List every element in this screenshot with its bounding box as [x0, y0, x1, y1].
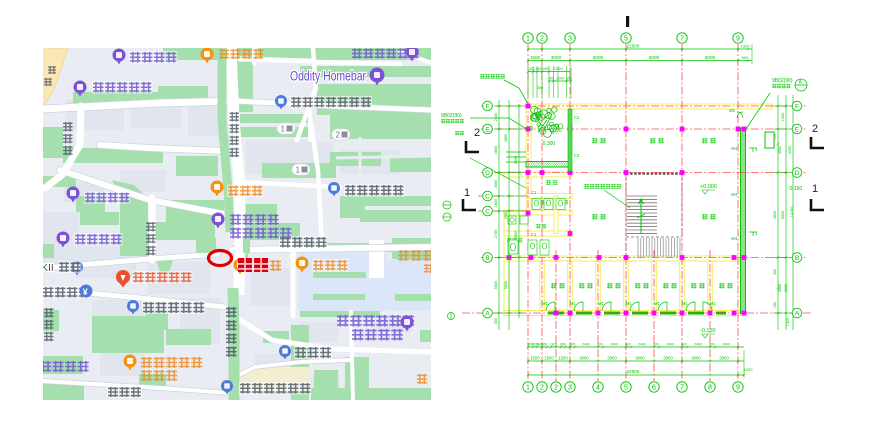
svg-text:14700: 14700 — [790, 207, 794, 218]
svg-text:5: 5 — [624, 36, 628, 43]
svg-text:M1: M1 — [542, 301, 548, 306]
svg-text:2400: 2400 — [694, 343, 702, 347]
svg-text:900: 900 — [543, 67, 549, 71]
svg-text:C: C — [485, 193, 490, 200]
svg-text:Oddity Homebar: Oddity Homebar — [290, 69, 366, 84]
svg-text:300: 300 — [529, 67, 535, 71]
svg-text:-0.150: -0.150 — [788, 186, 802, 192]
svg-text:F: F — [486, 103, 490, 110]
svg-text:C1: C1 — [531, 232, 537, 237]
svg-text:1200: 1200 — [556, 77, 564, 81]
svg-text:3000: 3000 — [551, 55, 562, 60]
svg-text:5500: 5500 — [504, 281, 508, 289]
svg-text:E: E — [485, 126, 490, 133]
svg-text:2: 2 — [554, 385, 558, 392]
svg-text:7: 7 — [680, 36, 684, 43]
svg-text:600: 600 — [597, 343, 603, 347]
svg-text:300: 300 — [494, 318, 498, 324]
svg-text:3000: 3000 — [778, 284, 782, 292]
svg-text:2: 2 — [812, 123, 818, 135]
svg-text:2: 2 — [540, 36, 544, 43]
svg-text:600: 600 — [560, 343, 566, 347]
svg-text:4800: 4800 — [773, 211, 777, 219]
svg-text:600: 600 — [625, 343, 631, 347]
svg-text:22500: 22500 — [627, 44, 640, 49]
svg-text:C3: C3 — [574, 153, 580, 158]
svg-text:3: 3 — [568, 385, 572, 392]
svg-text:3000: 3000 — [691, 356, 701, 361]
svg-text:8: 8 — [708, 385, 712, 392]
svg-text:-0.150: -0.150 — [700, 328, 716, 334]
svg-text:1: 1 — [281, 125, 286, 134]
svg-text:3000: 3000 — [663, 356, 673, 361]
svg-text:6000: 6000 — [705, 55, 716, 60]
svg-text:9: 9 — [736, 36, 740, 43]
svg-text:C2: C2 — [574, 115, 580, 120]
svg-text:3900: 3900 — [504, 211, 508, 219]
svg-text:D: D — [795, 170, 800, 177]
svg-text:2400: 2400 — [638, 343, 646, 347]
svg-text:7: 7 — [680, 385, 684, 392]
svg-text:3300: 3300 — [788, 146, 792, 154]
svg-text:M1: M1 — [654, 301, 660, 306]
svg-text:2400: 2400 — [722, 343, 730, 347]
svg-text:E: E — [795, 126, 800, 133]
svg-text:1: 1 — [526, 385, 530, 392]
svg-text:300: 300 — [570, 343, 576, 347]
svg-text:6600: 6600 — [514, 156, 518, 164]
svg-text:600: 600 — [681, 343, 687, 347]
svg-text:1: 1 — [755, 147, 758, 152]
svg-text:2: 2 — [336, 131, 341, 140]
svg-text:+0.000: +0.000 — [700, 184, 717, 190]
svg-text:2400: 2400 — [666, 343, 674, 347]
svg-text:9B02(90): 9B02(90) — [441, 113, 462, 119]
svg-text:2: 2 — [540, 385, 544, 392]
svg-text:M1: M1 — [570, 301, 576, 306]
svg-text:M1: M1 — [682, 301, 688, 306]
svg-text:3000: 3000 — [784, 284, 788, 292]
svg-text:5: 5 — [624, 385, 628, 392]
svg-text:B: B — [795, 255, 799, 262]
svg-text:1500: 1500 — [558, 356, 568, 361]
svg-text:F: F — [795, 103, 799, 110]
svg-text:2700: 2700 — [494, 230, 498, 238]
svg-text:1320: 1320 — [786, 318, 790, 326]
svg-text:B: B — [485, 255, 489, 262]
svg-text:C1: C1 — [531, 190, 537, 195]
svg-text:C: C — [485, 208, 490, 215]
svg-text:W4: W4 — [731, 236, 738, 241]
svg-text:2400: 2400 — [610, 343, 618, 347]
svg-text:6000: 6000 — [593, 55, 604, 60]
svg-text:600: 600 — [653, 343, 659, 347]
svg-text:1200: 1200 — [550, 343, 558, 347]
svg-text:M1: M1 — [626, 301, 632, 306]
svg-text:1: 1 — [755, 231, 758, 236]
svg-text:2100: 2100 — [554, 66, 564, 71]
svg-text:3000: 3000 — [719, 356, 729, 361]
svg-text:9B02(90): 9B02(90) — [772, 78, 793, 84]
svg-text:2600: 2600 — [494, 180, 498, 188]
svg-text:3000: 3000 — [579, 356, 589, 361]
svg-text:1: 1 — [296, 166, 301, 175]
svg-text:1020: 1020 — [744, 367, 754, 372]
svg-text:8500: 8500 — [514, 231, 518, 239]
svg-text:150: 150 — [773, 302, 777, 308]
svg-text:M5: M5 — [729, 108, 735, 113]
svg-text:4: 4 — [596, 385, 600, 392]
svg-text:3000: 3000 — [607, 356, 617, 361]
svg-text:1500: 1500 — [530, 55, 541, 60]
svg-text:3000: 3000 — [778, 146, 782, 154]
svg-text:4800: 4800 — [504, 134, 508, 142]
svg-text:1500: 1500 — [781, 113, 785, 121]
svg-text:1500: 1500 — [530, 356, 540, 361]
svg-text:1800: 1800 — [494, 199, 498, 207]
svg-text:W4: W4 — [731, 192, 738, 197]
svg-text:A: A — [795, 310, 800, 317]
svg-text:5500: 5500 — [494, 281, 498, 289]
svg-text:900: 900 — [742, 55, 749, 60]
svg-text:1500: 1500 — [544, 356, 554, 361]
svg-text:1: 1 — [526, 36, 530, 43]
svg-text:1: 1 — [464, 187, 470, 199]
svg-text:3000: 3000 — [635, 356, 645, 361]
svg-text:2400: 2400 — [582, 343, 590, 347]
svg-text:W4: W4 — [731, 146, 738, 151]
svg-text:M1: M1 — [710, 301, 716, 306]
svg-text:150: 150 — [773, 134, 777, 140]
svg-text:600: 600 — [709, 343, 715, 347]
svg-text:-0.300: -0.300 — [541, 141, 555, 147]
svg-text:6000: 6000 — [781, 211, 785, 219]
svg-text:9: 9 — [736, 385, 740, 392]
svg-text:M1: M1 — [598, 301, 604, 306]
svg-text:0.5%: 0.5% — [551, 128, 562, 135]
svg-text:¥: ¥ — [83, 287, 88, 297]
svg-text:2: 2 — [474, 127, 480, 139]
svg-text:KII: KII — [41, 262, 54, 274]
svg-text:3: 3 — [568, 36, 572, 43]
svg-text:450: 450 — [542, 343, 548, 347]
svg-text:1320: 1320 — [741, 44, 751, 49]
svg-text:D: D — [485, 170, 490, 177]
svg-text:450: 450 — [773, 269, 777, 275]
svg-text:6000: 6000 — [649, 55, 660, 60]
svg-text:2300: 2300 — [494, 113, 498, 121]
svg-text:6: 6 — [652, 385, 656, 392]
svg-text:1: 1 — [812, 183, 818, 195]
svg-text:4800: 4800 — [494, 146, 498, 154]
svg-text:A: A — [485, 310, 490, 317]
svg-text:22500: 22500 — [627, 369, 640, 374]
